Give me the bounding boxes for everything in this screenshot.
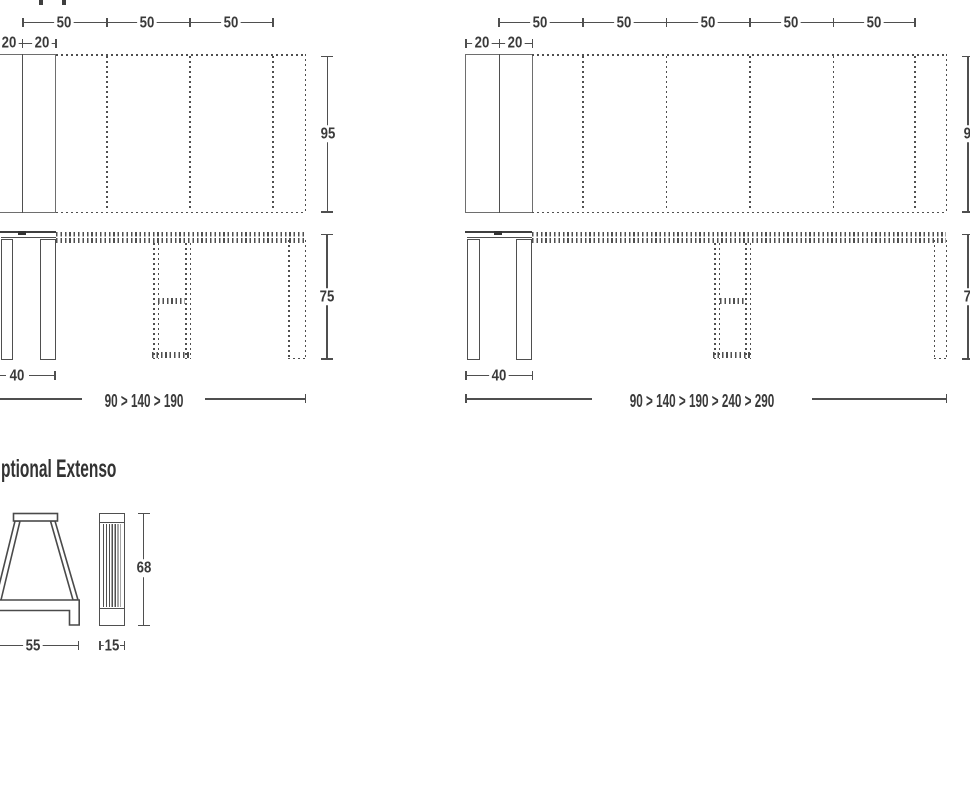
tabletop-solid-section: [0, 54, 56, 213]
trestle-crossbar: [158, 298, 185, 304]
extension-leaf-divider: [582, 56, 584, 210]
table-leg: [1, 239, 13, 360]
leaf-dim-label: 50: [781, 14, 801, 32]
trestle-post-outline: [185, 243, 187, 359]
depth-dim-label: 95: [961, 125, 970, 143]
dim-tick: [499, 39, 501, 48]
extension-outline-end: [946, 54, 948, 213]
extension-outline-top: [532, 54, 947, 56]
dim-cap: [962, 56, 970, 58]
extension-leaf-divider: [833, 56, 835, 210]
tabletop-seam-block: [494, 231, 502, 235]
end-dim-label: 20: [505, 34, 525, 52]
dim-tick: [305, 394, 307, 403]
trestle-side-view: [0, 508, 86, 630]
dim-line: [0, 375, 6, 377]
leaf-dim-label: 50: [137, 14, 157, 32]
section-title: ptional Extenso: [1, 457, 116, 482]
table-leg: [40, 239, 56, 360]
extension-outline-top: [56, 54, 306, 56]
dim-tick: [914, 18, 916, 27]
dim-tick: [54, 371, 56, 380]
dim-tick: [124, 641, 126, 650]
dim-line: [205, 398, 306, 400]
dim-cap: [962, 358, 970, 360]
trestle-slanted-leg: [51, 521, 79, 600]
extension-leaf-divider: [666, 56, 668, 210]
trestle-foot-bar: [152, 352, 191, 358]
diagram-canvas: 50 50 50 20 20 95: [0, 0, 970, 787]
dim-line: [0, 398, 82, 400]
dim-tick: [465, 39, 467, 48]
tabletop-center-seam: [499, 54, 501, 213]
dim-line: [812, 398, 947, 400]
extension-leg-outline: [288, 358, 306, 360]
dim-cap: [962, 211, 970, 213]
dim-tick: [532, 371, 534, 380]
trestle-depth-label: 55: [23, 637, 43, 655]
dim-tick: [22, 39, 24, 48]
dim-tick: [465, 371, 467, 380]
trestle-foot-line: [99, 608, 125, 610]
trestle-cap-line: [99, 522, 125, 524]
depth-dim-label: 95: [318, 125, 338, 143]
trestle-height-label: 68: [134, 559, 154, 577]
trestle-post-outline: [190, 243, 192, 359]
dim-line: [465, 398, 592, 400]
trestle-column-hatch: [103, 524, 121, 607]
extension-top-hatch: [532, 232, 946, 243]
table-leg: [516, 239, 532, 360]
cropped-text-remnant: [62, 0, 66, 5]
leg-span-label: 40: [7, 367, 27, 385]
extension-top-hatch: [56, 232, 306, 243]
leaf-dim-label: 50: [614, 14, 634, 32]
extension-leaf-divider: [914, 56, 916, 210]
tabletop-center-seam: [22, 54, 24, 213]
trestle-crossbar: [720, 298, 746, 304]
extension-outline-bottom: [532, 212, 947, 214]
dim-tick: [272, 18, 274, 27]
leg-span-label: 40: [489, 367, 509, 385]
extension-leaf-divider: [106, 56, 108, 210]
extension-leaf-divider: [272, 56, 274, 210]
dim-tick: [749, 18, 751, 27]
leaf-dim-label: 50: [864, 14, 884, 32]
extension-leaf-divider: [749, 56, 751, 210]
extension-stages-label: 90 > 140 > 190 > 240 > 290: [628, 391, 775, 411]
trestle-top-cap: [14, 514, 58, 522]
dim-tick: [78, 641, 80, 650]
cropped-text-remnant: [39, 0, 43, 5]
dim-tick: [189, 18, 191, 27]
end-dim-label: 20: [32, 34, 52, 52]
leaf-dim-label: 50: [221, 14, 241, 32]
extension-leg-outline: [946, 240, 948, 359]
dim-tick: [666, 18, 668, 27]
dim-tick: [106, 18, 108, 27]
dim-tick: [498, 18, 500, 27]
extension-outline-bottom: [56, 212, 306, 214]
end-dim-label: 20: [472, 34, 492, 52]
extension-leg-outline: [934, 240, 936, 359]
extension-leg-outline: [305, 240, 307, 359]
dim-tick: [55, 39, 57, 48]
leaf-dim-label: 50: [698, 14, 718, 32]
trestle-foot-bar: [713, 352, 751, 358]
height-dim-label: 75: [317, 288, 337, 306]
trestle-slanted-leg: [0, 521, 20, 600]
extension-stages-label: 90 > 140 > 190: [103, 391, 184, 411]
dim-tick: [99, 641, 101, 650]
height-dim-label: 75: [961, 288, 970, 306]
dim-tick: [532, 39, 534, 48]
dim-tick: [946, 394, 948, 403]
extension-leaf-divider: [189, 56, 191, 210]
tabletop-seam-block: [18, 231, 26, 235]
trestle-post-outline: [714, 243, 716, 359]
dim-tick: [22, 18, 24, 27]
trestle-width-label: 15: [103, 637, 119, 655]
table-leg: [467, 239, 480, 360]
dim-cap: [962, 234, 970, 236]
end-dim-label: 20: [0, 34, 19, 52]
extension-leg-outline: [934, 358, 948, 360]
tabletop-edge: [0, 231, 56, 233]
trestle-post-outline: [153, 243, 155, 359]
leaf-dim-label: 50: [530, 14, 550, 32]
dim-tick: [833, 18, 835, 27]
trestle-post-outline: [750, 243, 752, 359]
dim-tick: [582, 18, 584, 27]
extension-leg-outline: [288, 240, 290, 359]
extension-outline-end: [305, 54, 307, 213]
leaf-dim-label: 50: [54, 14, 74, 32]
trestle-base-rail: [0, 600, 79, 625]
dim-line: [29, 375, 55, 377]
